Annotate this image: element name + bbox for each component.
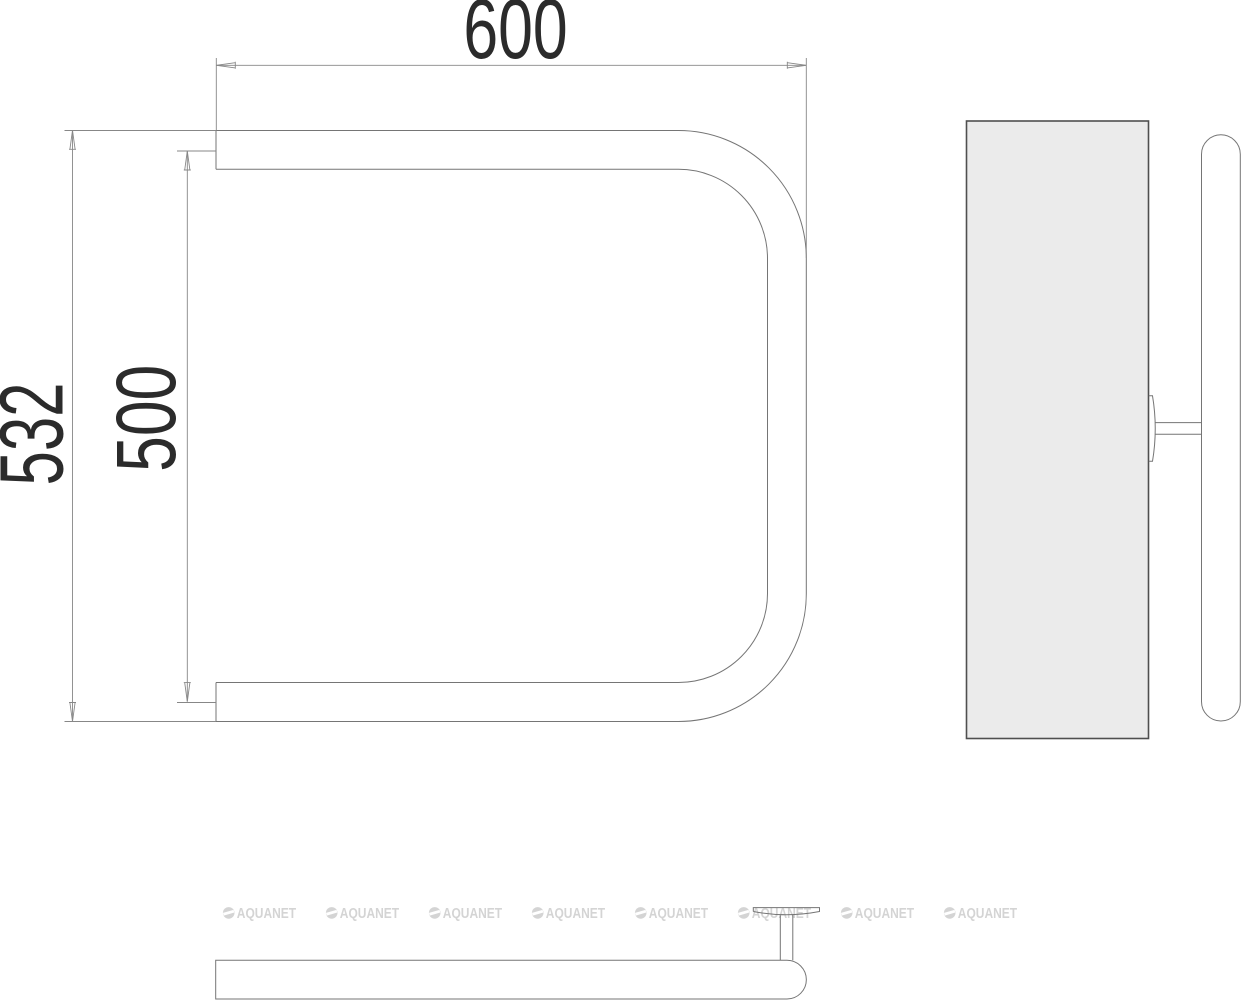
svg-text:AQUANET: AQUANET: [546, 905, 606, 922]
svg-text:532: 532: [0, 382, 82, 485]
svg-text:AQUANET: AQUANET: [237, 905, 297, 922]
svg-text:AQUANET: AQUANET: [443, 905, 503, 922]
svg-text:500: 500: [99, 365, 193, 472]
svg-text:600: 600: [463, 0, 567, 76]
svg-text:AQUANET: AQUANET: [340, 905, 400, 922]
svg-text:AQUANET: AQUANET: [958, 905, 1018, 922]
svg-text:AQUANET: AQUANET: [855, 905, 915, 922]
svg-text:AQUANET: AQUANET: [649, 905, 709, 922]
